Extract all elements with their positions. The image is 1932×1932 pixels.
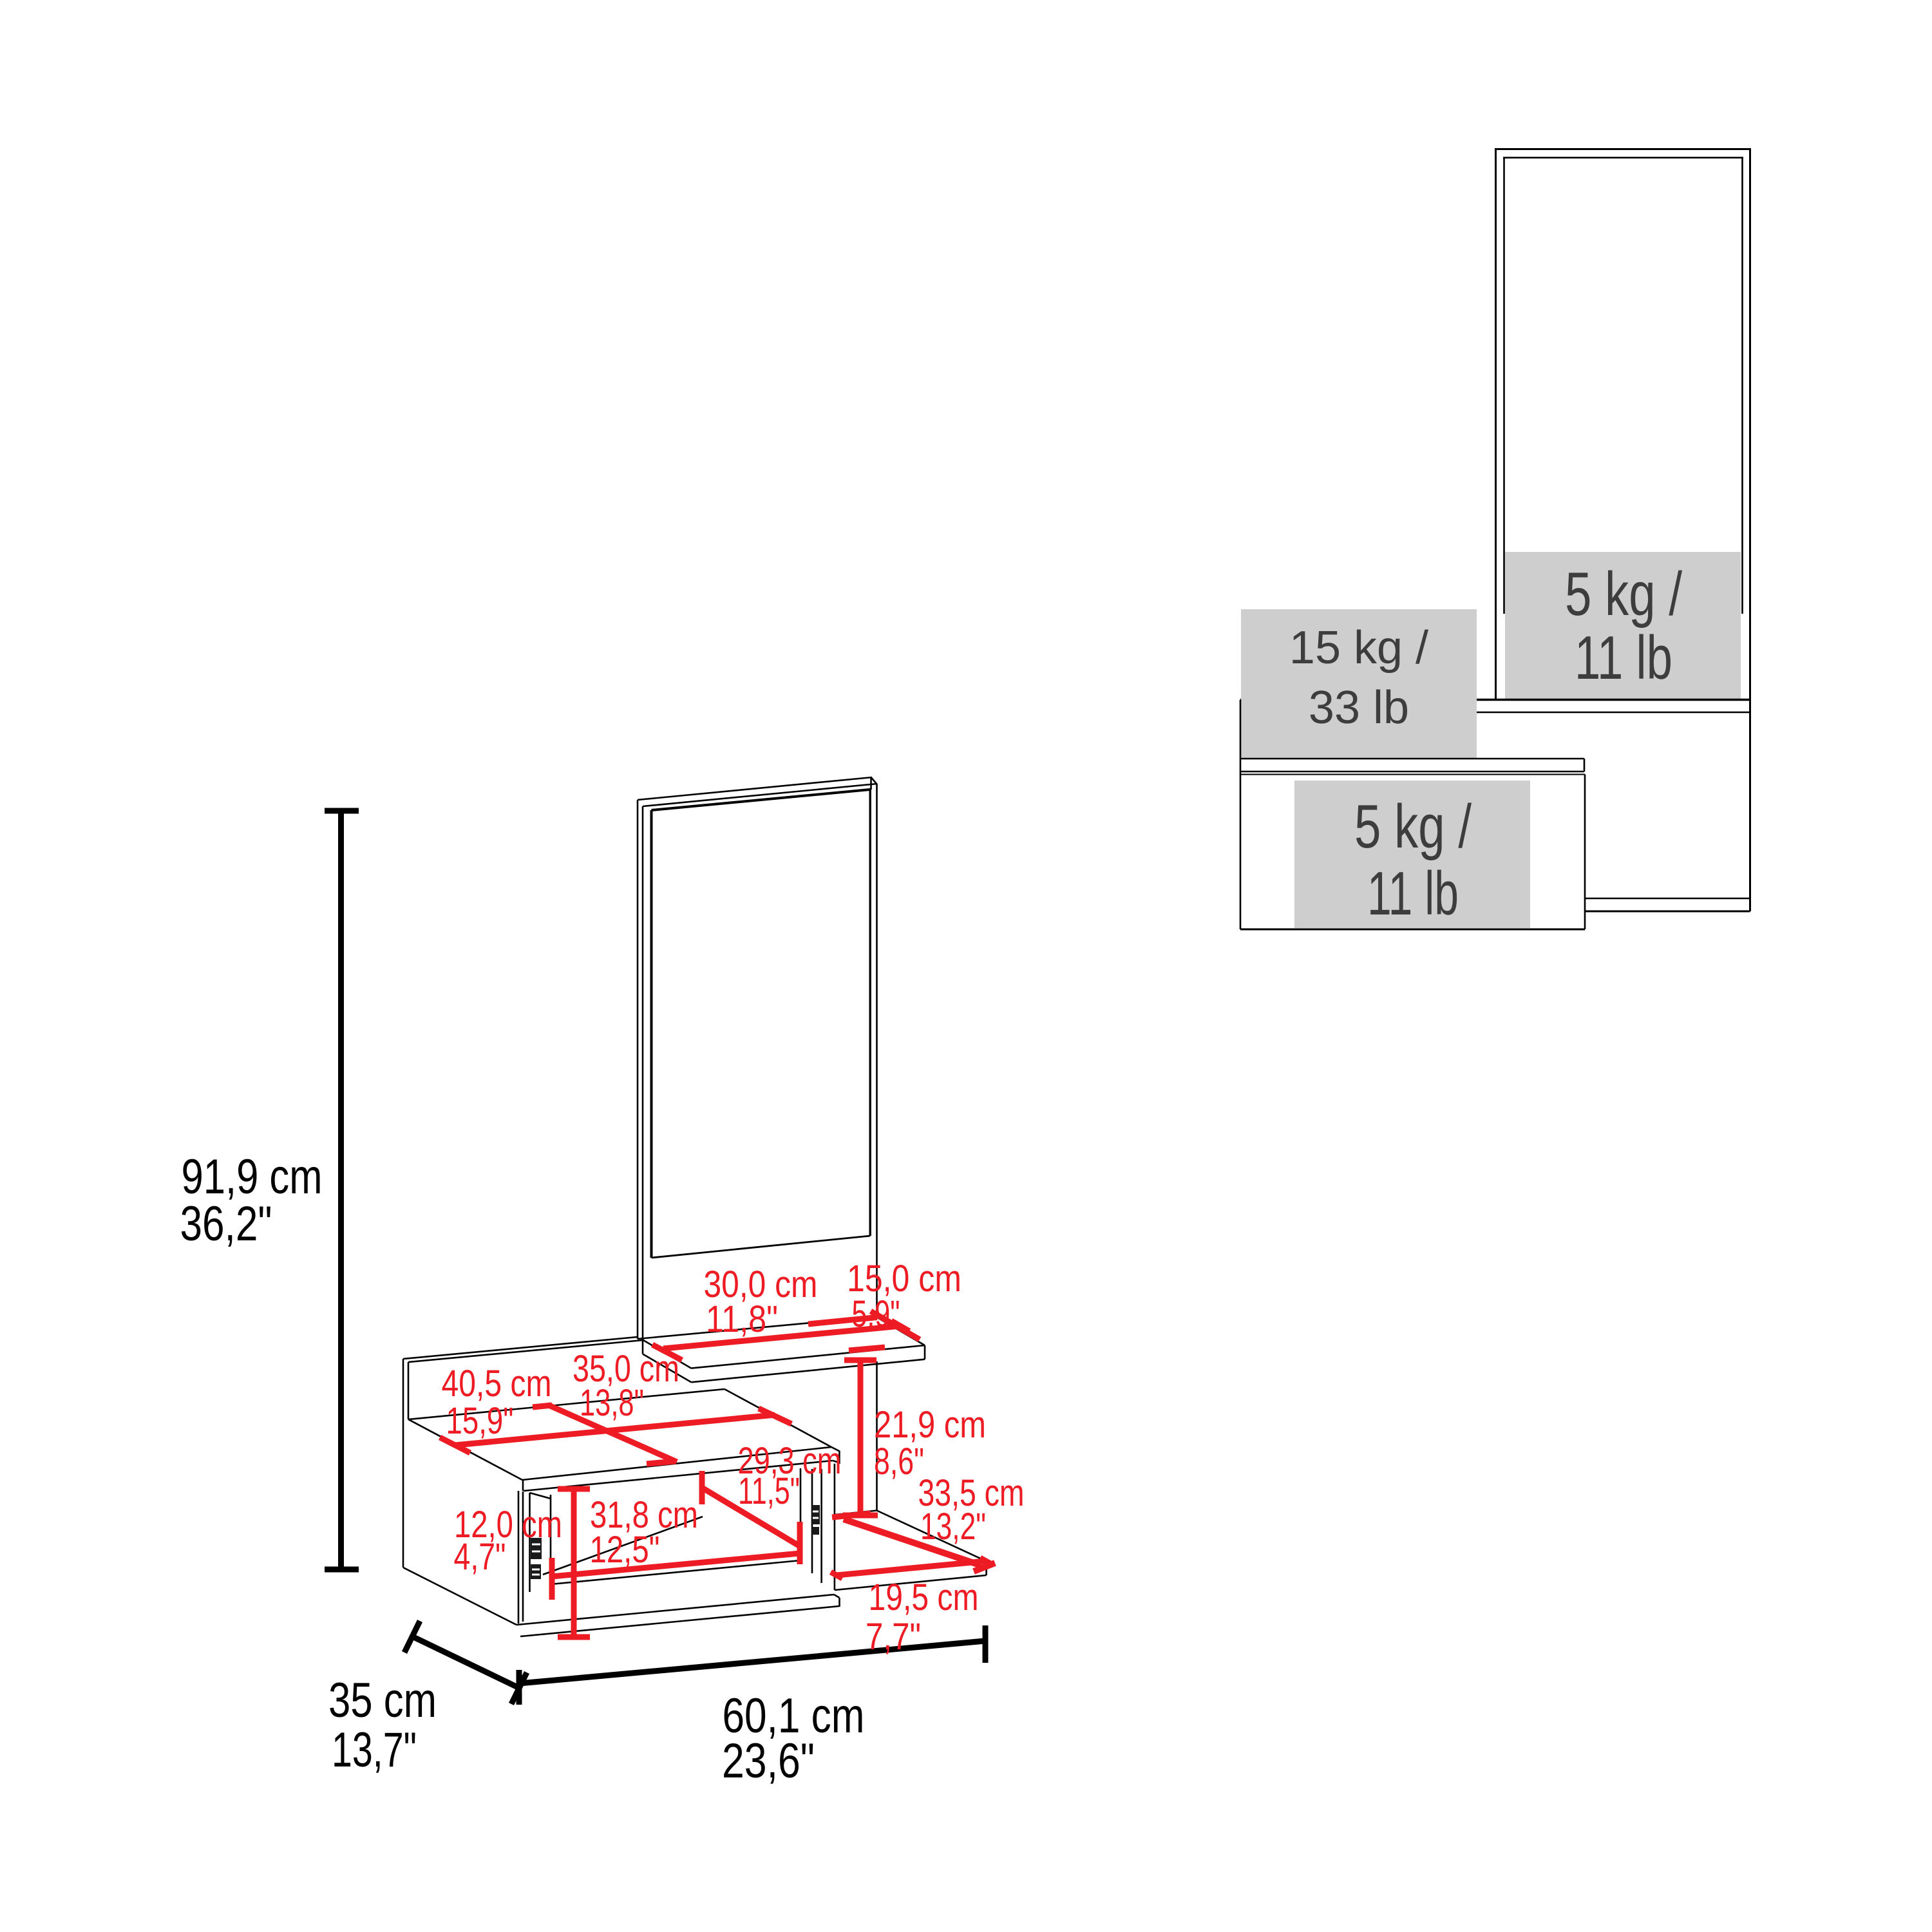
svg-text:33 lb: 33 lb	[1309, 682, 1409, 734]
svg-text:35 cm: 35 cm	[328, 1673, 437, 1728]
svg-text:15,9": 15,9"	[446, 1400, 514, 1442]
svg-text:5 kg /: 5 kg /	[1565, 560, 1682, 629]
svg-text:40,5 cm: 40,5 cm	[442, 1363, 552, 1405]
svg-text:11,8": 11,8"	[706, 1298, 778, 1340]
svg-text:8,6": 8,6"	[874, 1441, 924, 1482]
svg-text:36,2": 36,2"	[180, 1197, 272, 1251]
svg-text:5,9": 5,9"	[852, 1293, 900, 1335]
svg-text:21,9 cm: 21,9 cm	[874, 1404, 986, 1446]
svg-text:23,6": 23,6"	[722, 1734, 815, 1788]
svg-text:11 lb: 11 lb	[1367, 859, 1459, 928]
svg-text:11 lb: 11 lb	[1575, 623, 1672, 692]
svg-text:15 kg /: 15 kg /	[1289, 622, 1428, 674]
svg-text:13,2": 13,2"	[920, 1506, 986, 1548]
svg-text:7,7": 7,7"	[866, 1616, 921, 1658]
svg-text:12,5": 12,5"	[590, 1529, 660, 1571]
svg-text:11,5": 11,5"	[738, 1470, 800, 1512]
svg-text:13,7": 13,7"	[332, 1723, 417, 1777]
svg-text:4,7": 4,7"	[454, 1536, 506, 1578]
svg-text:5 kg /: 5 kg /	[1354, 792, 1472, 861]
svg-text:13,8": 13,8"	[580, 1382, 644, 1424]
svg-text:19,5 cm: 19,5 cm	[869, 1577, 979, 1618]
